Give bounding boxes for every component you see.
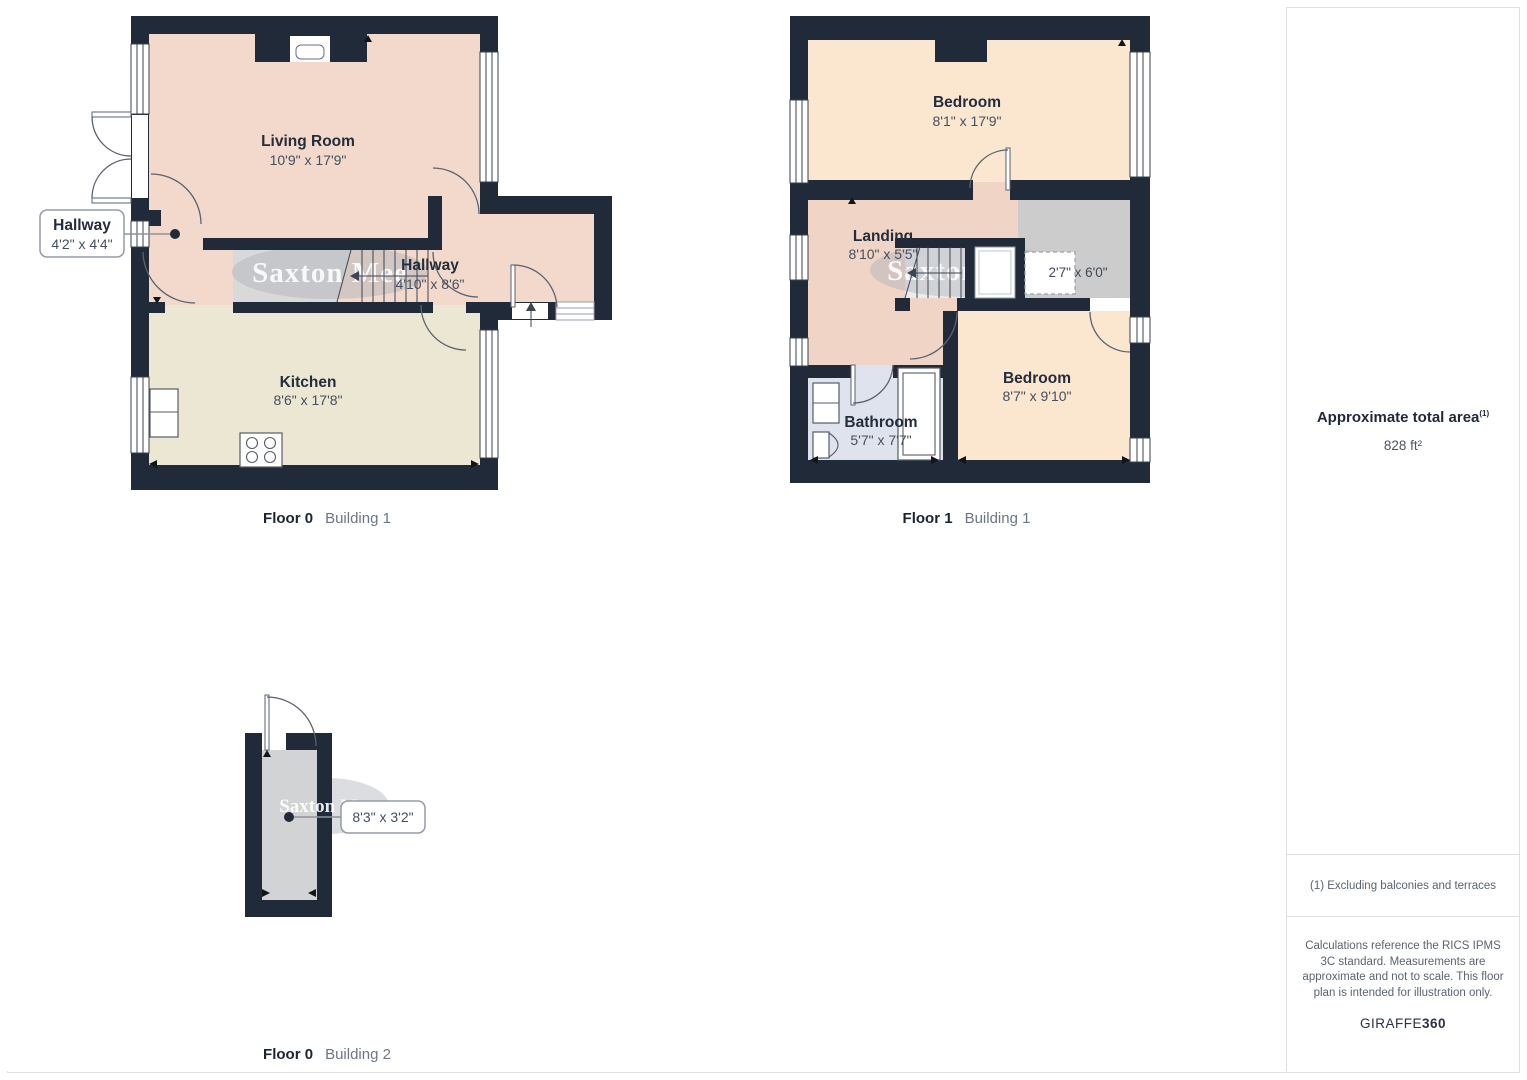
cupboard-dims: 2'7" x 6'0" [1048,265,1107,280]
window [480,330,498,458]
entrance-opening [132,115,148,198]
porch-steps [556,302,594,320]
bedroom-door-leaf [1006,148,1010,190]
total-area-value: 828 ft² [1384,438,1422,453]
window [1130,52,1150,177]
porch-door-leaf [511,265,515,307]
entrance-door-leaf [92,198,131,203]
fireplace [290,36,330,62]
window [790,100,808,183]
store-callout-dims: 8'3" x 3'2" [352,809,413,825]
floorplan-floor0-building1: Saxton Mee [7,7,647,538]
watermark-text: Saxton Mee [252,257,408,289]
landing-name: Landing [853,228,913,245]
giraffe360-logo: GIRAFFE360 [1287,1016,1519,1031]
disclaimer-section: Calculations reference the RICS IPMS 3C … [1287,916,1519,1071]
bedroom-top-dims: 8'1" x 17'9" [933,113,1002,129]
exclusions-note: (1) Excluding balconies and terraces [1287,854,1519,916]
hallway-dims: 4'10" x 8'6" [396,276,465,292]
panel-empty [647,538,1286,1071]
window [1130,317,1150,343]
caption-floor: Floor 0 [263,510,313,528]
kitchen-name: Kitchen [280,374,337,391]
living-room-name: Living Room [261,133,355,150]
toilet [813,432,829,458]
landing-dims: 8'10" x 5'5" [849,246,918,262]
callout-anchor-dot [170,229,180,239]
bedroom-bottom-dims: 8'7" x 9'10" [1003,388,1072,404]
porch-floor [480,214,594,302]
callout-anchor-dot [284,812,294,822]
disclaimer-text: Calculations reference the RICS IPMS 3C … [1300,939,1506,1001]
entrance-door-arc [92,117,131,156]
living-room-dims: 10'9" x 17'9" [270,152,347,168]
total-area-section: Approximate total area(1) 828 ft² [1287,7,1519,854]
window [790,338,808,366]
floorplan-floor0-building2: Saxton Mee 8'3" x 3'2" [7,538,647,1071]
panel-floor1-building1: Saxton Mee [647,7,1286,539]
bedroom-bottom-name: Bedroom [1003,370,1071,387]
store-floor [262,750,317,900]
window [790,235,808,280]
bedroom-door-opening [973,182,1010,200]
cupboard [975,247,1015,298]
bathroom-name: Bathroom [844,414,917,431]
caption-floor0-building2: Floor 0 Building 2 [7,1046,647,1064]
floorplan-floor1-building1: Saxton Mee [647,7,1286,538]
floorplan-page: Saxton Mee [0,0,1527,1080]
bedroom-top-name: Bedroom [933,94,1001,111]
window [131,44,149,114]
window [1130,438,1150,462]
bathroom-dims: 5'7" x 7'7" [850,432,911,448]
stove [240,433,282,467]
caption-building: Building 1 [325,510,391,528]
approx-total-area-title: Approximate total area(1) [1317,409,1489,426]
caption-floor: Floor 0 [263,1046,313,1064]
window [131,377,149,453]
footnote-marker: (1) [1479,409,1489,418]
entrance-door-leaf [92,112,131,117]
panel-floor0-building2: Saxton Mee 8'3" x 3'2" Floor 0 Building … [7,538,648,1071]
caption-floor0-building1: Floor 0 Building 1 [7,510,647,528]
caption-floor1-building1: Floor 1 Building 1 [647,510,1286,528]
sink [150,389,178,437]
hallway-name: Hallway [401,257,459,274]
bathroom-door-leaf [851,365,855,405]
window [480,52,498,182]
caption-floor: Floor 1 [903,510,953,528]
hallway-callout-dims: 4'2" x 4'4" [51,236,112,252]
summary-sidebar: Approximate total area(1) 828 ft² (1) Ex… [1286,7,1519,1071]
caption-building: Building 1 [965,510,1031,528]
hallway-callout-name: Hallway [53,217,111,234]
caption-building: Building 2 [325,1046,391,1064]
panel-floor0-building1: Saxton Mee [7,7,648,539]
store-door-leaf [265,695,269,750]
kitchen-dims: 8'6" x 17'8" [274,392,343,408]
entrance-door-arc [92,159,131,198]
